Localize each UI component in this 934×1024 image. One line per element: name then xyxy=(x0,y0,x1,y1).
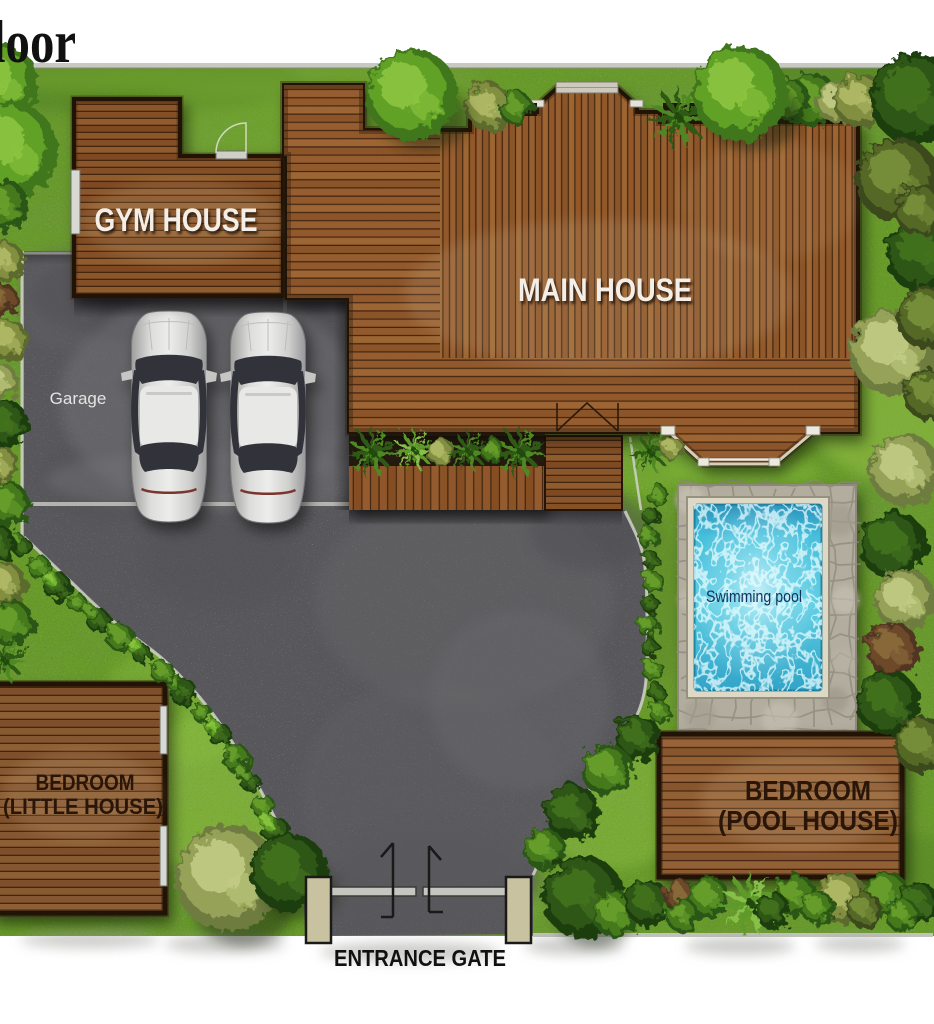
svg-text:BEDROOM: BEDROOM xyxy=(36,770,135,795)
svg-text:ENTRANCE GATE: ENTRANCE GATE xyxy=(334,945,506,971)
svg-text:GYM HOUSE: GYM HOUSE xyxy=(95,202,258,238)
svg-text:(LITTLE HOUSE): (LITTLE HOUSE) xyxy=(3,794,163,819)
svg-text:Garage: Garage xyxy=(50,389,107,408)
svg-text:BEDROOM: BEDROOM xyxy=(745,775,871,806)
svg-text:MAIN HOUSE: MAIN HOUSE xyxy=(518,272,692,308)
svg-text:Swimming pool: Swimming pool xyxy=(706,587,802,606)
svg-text:loor: loor xyxy=(0,9,76,75)
svg-text:(POOL HOUSE): (POOL HOUSE) xyxy=(718,805,898,836)
